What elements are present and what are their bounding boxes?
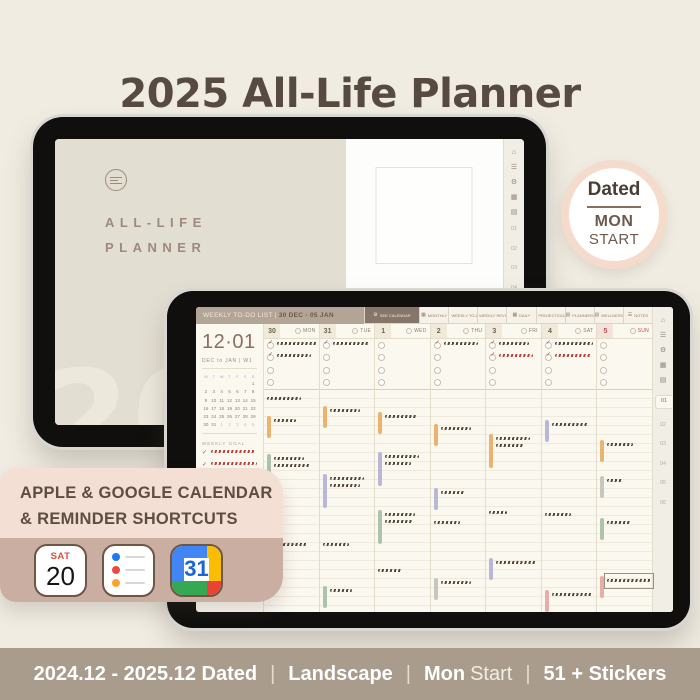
planner-tab-weekly-to-do[interactable]: ▦WEEKLY TO-DO [448, 307, 477, 323]
day-column-sun: 5SUN [597, 324, 652, 612]
day-header[interactable]: 4SAT [542, 324, 597, 339]
week-range-label: DEC to JAN | W1 [202, 358, 257, 369]
event-color-bar [434, 424, 438, 446]
todo-item[interactable] [375, 339, 430, 352]
mini-cal-day[interactable]: 27 [233, 414, 241, 420]
todo-checkbox[interactable]: ✓ [489, 342, 496, 349]
mini-cal-day[interactable] [226, 381, 234, 387]
event-handwriting [552, 590, 595, 600]
day-weekday-label: WED [414, 328, 427, 334]
planner-tab-label: PROJECT/GOAL [538, 313, 564, 318]
timeline-event[interactable] [489, 508, 539, 518]
todo-item[interactable]: ✓ [264, 352, 319, 365]
mini-cal-day[interactable]: 24 [210, 414, 218, 420]
todo-checkbox[interactable]: ✓ [545, 354, 552, 361]
check-mark-icon: ✓ [490, 352, 495, 358]
todo-checkbox[interactable]: ✓ [545, 342, 552, 349]
settings-icon[interactable]: ⚙ [511, 179, 517, 186]
apple-calendar-weekday: SAT [51, 551, 71, 562]
event-color-bar [378, 412, 382, 434]
mini-cal-day[interactable]: 7 [241, 389, 249, 395]
reminder-line [125, 582, 145, 585]
todo-item[interactable] [320, 364, 375, 377]
day-timeline[interactable] [320, 390, 375, 612]
event-color-bar [323, 586, 327, 608]
timeline-event[interactable] [434, 424, 484, 446]
event-handwriting [330, 474, 373, 491]
todo-item[interactable] [597, 364, 652, 377]
month-tab-04[interactable]: 04 [660, 462, 666, 468]
settings-icon[interactable]: ⚙ [660, 347, 666, 354]
planner-tab-planners[interactable]: ▤PLANNERS [565, 307, 594, 323]
timeline-event[interactable] [600, 440, 650, 462]
event-color-bar [489, 434, 493, 468]
badge-dated-label: Dated [569, 179, 659, 201]
day-weekday-label: SAT [583, 328, 593, 334]
event-handwriting [330, 406, 373, 416]
mini-calendar[interactable]: 1234567891011121314151617181920212223242… [202, 381, 257, 434]
handwritten-note [607, 479, 623, 482]
todo-item[interactable]: ✓ [542, 339, 597, 352]
home-icon[interactable]: ⌂ [512, 149, 516, 156]
todo-checkbox[interactable] [434, 354, 441, 361]
mini-cal-day[interactable]: 18 [218, 406, 226, 412]
todo-item[interactable] [375, 352, 430, 365]
handwritten-note [330, 477, 364, 480]
month-tab-01[interactable]: 01 [511, 227, 517, 233]
day-header[interactable]: 30MON [264, 324, 319, 339]
event-handwriting [441, 424, 484, 434]
reminder-color-dot [112, 566, 120, 574]
todo-item[interactable] [597, 339, 652, 352]
todo-checkbox[interactable] [600, 379, 607, 386]
handwritten-note [211, 450, 255, 453]
mini-cal-day[interactable]: 17 [210, 406, 218, 412]
timeline-event[interactable] [434, 578, 484, 600]
event-handwriting [378, 566, 428, 576]
mini-cal-day[interactable]: 5 [226, 389, 234, 395]
timeline-event[interactable] [489, 558, 539, 580]
todo-item[interactable] [320, 377, 375, 390]
day-weekday-label: TUE [360, 328, 371, 334]
month-tab-02[interactable]: 02 [511, 247, 517, 253]
calendar-icon[interactable]: ▦ [660, 362, 667, 369]
todo-checkbox[interactable] [434, 367, 441, 374]
day-weekday-label: FRI [529, 328, 538, 334]
planner-tab-label: WELLNESS [601, 313, 623, 318]
event-handwriting [385, 452, 428, 469]
event-handwriting [496, 434, 539, 451]
footer-separator: | [257, 663, 288, 686]
mini-cal-day[interactable]: 23 [202, 414, 210, 420]
calendar-icon: ▦ [421, 313, 426, 318]
day-column-fri: 3FRI✓✓ [486, 324, 542, 612]
day-timeline[interactable] [431, 390, 486, 612]
mini-cal-day[interactable]: 9 [202, 398, 210, 404]
gcal-green-band [172, 581, 207, 595]
reminder-row [112, 566, 145, 574]
month-tab-02[interactable]: 02 [660, 423, 666, 429]
todo-checkbox[interactable] [378, 354, 385, 361]
reminder-line [125, 556, 145, 559]
handwritten-note [441, 491, 465, 494]
todo-checkbox[interactable] [600, 367, 607, 374]
planner-tab-bar: ⚙SEE CALENDAR▦MONTHLY▦WEEKLY TO-DO▦WEEKL… [364, 307, 652, 324]
todo-item[interactable] [542, 377, 597, 390]
handwritten-note [323, 543, 349, 546]
event-color-bar [600, 576, 604, 598]
todo-checkbox[interactable] [378, 342, 385, 349]
todo-item[interactable] [431, 352, 486, 365]
list-icon[interactable]: ☰ [660, 332, 666, 339]
todo-item[interactable]: ✓ [486, 352, 541, 365]
weekly-header-title: WEEKLY TO-DO LIST | 30 DEC - 05 JAN [196, 307, 364, 324]
handwritten-note [385, 520, 413, 523]
todo-item[interactable] [264, 377, 319, 390]
todo-checkbox[interactable] [323, 354, 330, 361]
planner-tab-label: SEE CALENDAR [380, 313, 411, 318]
timeline-event[interactable] [545, 420, 595, 442]
timeline-event[interactable] [267, 394, 317, 404]
mini-cal-day[interactable]: 26 [226, 414, 234, 420]
event-color-bar [378, 452, 382, 486]
day-status-ring[interactable] [295, 328, 301, 334]
calendar-alt-icon[interactable]: ▤ [511, 209, 518, 216]
mini-cal-day[interactable]: 10 [210, 398, 218, 404]
handwritten-note [607, 443, 633, 446]
timeline-event[interactable] [267, 416, 317, 438]
handwritten-note [496, 444, 524, 447]
day-status-ring[interactable] [521, 328, 527, 334]
event-handwriting [267, 394, 317, 404]
planner-tab-see-calendar[interactable]: ⚙SEE CALENDAR [364, 307, 419, 323]
weekly-goal-item[interactable]: ✓ [202, 450, 257, 457]
month-transition-label: 12·01 [202, 331, 257, 354]
day-status-ring[interactable] [352, 328, 358, 334]
event-handwriting [330, 586, 373, 596]
handwritten-note [330, 409, 360, 412]
mini-cal-day[interactable]: 29 [249, 414, 257, 420]
event-handwriting [552, 420, 595, 430]
event-handwriting [441, 488, 484, 498]
todo-handwriting [333, 342, 369, 345]
badge-mon-label: MON [569, 213, 659, 231]
mini-calendar-weekday-row: MTWTFSS [202, 374, 257, 379]
day-header[interactable]: 3FRI [486, 324, 541, 339]
mini-cal-day[interactable]: 3 [233, 422, 241, 428]
handwritten-note [385, 415, 417, 418]
event-handwriting [441, 578, 484, 588]
mini-cal-day[interactable]: 14 [241, 398, 249, 404]
cover-title-line1: ALL-LIFE [105, 215, 207, 230]
planner-tab-label: NOTES [634, 313, 648, 318]
mini-cal-day[interactable]: 2 [226, 422, 234, 428]
footer-stickers-count: 51 + Stickers [544, 663, 667, 686]
timeline-event[interactable] [600, 576, 650, 598]
mini-cal-day[interactable] [241, 381, 249, 387]
todo-item[interactable] [486, 377, 541, 390]
event-handwriting [274, 454, 317, 471]
day-number: 30 [264, 324, 280, 338]
mini-cal-day[interactable] [218, 381, 226, 387]
month-tab-05[interactable]: 05 [660, 481, 666, 487]
handwritten-note [385, 513, 415, 516]
day-timeline[interactable] [486, 390, 541, 612]
todo-item[interactable] [597, 352, 652, 365]
dated-mon-start-badge: Dated MON START [561, 160, 667, 269]
todo-checkbox[interactable] [378, 379, 385, 386]
cover-stamp-icon [105, 169, 127, 191]
timeline-event[interactable] [323, 540, 373, 550]
todo-checkbox[interactable]: ✓ [323, 342, 330, 349]
todo-handwriting [277, 354, 311, 357]
photo-placeholder[interactable] [376, 167, 473, 264]
handwritten-note [378, 569, 402, 572]
mini-cal-day[interactable]: 20 [233, 406, 241, 412]
todo-item[interactable]: ✓ [542, 352, 597, 365]
todo-checkbox[interactable]: ✓ [434, 342, 441, 349]
mini-cal-day[interactable] [202, 381, 210, 387]
check-mark-icon: ✓ [546, 340, 551, 346]
todo-item[interactable] [597, 377, 652, 390]
weekly-header-range: 30 DEC - 05 JAN [279, 312, 334, 319]
todo-handwriting [555, 342, 593, 345]
planner-tab-project-goal[interactable]: ☰PROJECT/GOAL [536, 307, 565, 323]
month-tab-06[interactable]: 06 [660, 501, 666, 507]
event-color-bar [600, 518, 604, 540]
footer-week-start-bold: Mon [424, 663, 465, 686]
todo-checkbox[interactable] [545, 379, 552, 386]
mini-cal-day[interactable]: 3 [210, 389, 218, 395]
mini-cal-day[interactable]: 28 [241, 414, 249, 420]
timeline-event[interactable] [323, 406, 373, 428]
handwritten-note [441, 581, 471, 584]
day-weekday-label: THU [471, 328, 482, 334]
day-header[interactable]: 1WED [375, 324, 430, 339]
day-number: 31 [320, 324, 336, 338]
calendar-icon: ▦ [512, 313, 517, 318]
todo-handwriting [277, 342, 317, 345]
mini-cal-day[interactable]: 12 [226, 398, 234, 404]
apple-reminders-icon [102, 544, 155, 597]
todo-list: ✓✓ [486, 339, 541, 390]
timeline-event[interactable] [323, 474, 373, 508]
planner-tab-wellness[interactable]: ▤WELLNESS [594, 307, 623, 323]
day-timeline[interactable] [597, 390, 652, 612]
calendar-alt-icon: ▤ [566, 313, 571, 318]
event-handwriting [496, 558, 539, 568]
planner-side-tab-strip: ⌂☰⚙▦▤010203040506 [652, 307, 673, 612]
todo-checkbox[interactable] [434, 379, 441, 386]
todo-item[interactable] [431, 377, 486, 390]
todo-item[interactable] [486, 364, 541, 377]
event-color-bar [545, 590, 549, 612]
timeline-event[interactable] [600, 518, 650, 540]
day-column-tue: 31TUE✓ [320, 324, 376, 612]
day-column-wed: 1WED [375, 324, 431, 612]
event-color-bar [378, 510, 382, 544]
day-status-ring[interactable] [463, 328, 469, 334]
week-day-columns: 30MON✓✓31TUE✓1WED2THU✓3FRI✓✓4SAT✓✓5SUN [264, 324, 652, 612]
calendar-alt-icon[interactable]: ▤ [660, 377, 667, 384]
reminder-color-dot [112, 553, 120, 561]
calendar-icon[interactable]: ▦ [511, 194, 518, 201]
mini-cal-day[interactable]: 11 [218, 398, 226, 404]
todo-checkbox[interactable]: ✓ [489, 354, 496, 361]
mini-cal-day[interactable]: 15 [249, 398, 257, 404]
mini-cal-day[interactable]: 30 [202, 422, 210, 428]
planner-tab-notes[interactable]: ☰NOTES [623, 307, 652, 323]
timeline-event[interactable] [378, 566, 428, 576]
todo-item[interactable]: ✓ [486, 339, 541, 352]
mini-cal-day[interactable] [233, 381, 241, 387]
mini-cal-day[interactable]: 25 [218, 414, 226, 420]
mini-cal-day[interactable]: 8 [249, 389, 257, 395]
timeline-event[interactable] [545, 590, 595, 612]
todo-checkbox[interactable] [545, 367, 552, 374]
footer-dated-range: 2024.12 - 2025.12 Dated [34, 663, 258, 686]
todo-checkbox[interactable]: ✓ [267, 342, 274, 349]
shortcuts-callout-card: APPLE & GOOGLE CALENDAR & REMINDER SHORT… [0, 468, 283, 602]
check-mark-icon: ✓ [435, 340, 440, 346]
todo-checkbox[interactable] [489, 379, 496, 386]
handwritten-note [552, 423, 588, 426]
timeline-event[interactable] [378, 452, 428, 486]
planner-tab-monthly[interactable]: ▦MONTHLY [419, 307, 448, 323]
mini-cal-day[interactable]: 13 [233, 398, 241, 404]
page-title: 2025 All-Life Planner [0, 71, 700, 117]
calendar-alt-icon: ▤ [595, 313, 600, 318]
month-tab-03[interactable]: 03 [511, 266, 517, 272]
day-timeline[interactable] [375, 390, 430, 612]
shortcuts-text-line1: APPLE & GOOGLE CALENDAR [20, 481, 283, 507]
check-mark-icon: ✓ [268, 352, 273, 358]
todo-list [597, 339, 652, 390]
timeline-event[interactable] [434, 488, 484, 510]
timeline-event[interactable] [378, 412, 428, 434]
day-header[interactable]: 5SUN [597, 324, 652, 339]
todo-checkbox[interactable]: ✓ [267, 354, 274, 361]
day-status-ring[interactable] [630, 328, 636, 334]
todo-handwriting [555, 354, 591, 357]
check-mark-icon: ✓ [546, 352, 551, 358]
todo-checkbox[interactable] [267, 379, 274, 386]
todo-item[interactable] [264, 364, 319, 377]
day-status-ring[interactable] [406, 328, 412, 334]
footer-week-start-light: Start [470, 663, 512, 686]
todo-list: ✓✓ [264, 339, 319, 390]
todo-item[interactable] [542, 364, 597, 377]
checked-mark-icon[interactable]: ✓ [202, 450, 208, 456]
todo-item[interactable]: ✓ [320, 339, 375, 352]
day-header[interactable]: 31TUE [320, 324, 375, 339]
timeline-event[interactable] [434, 518, 484, 528]
event-color-bar [600, 476, 604, 498]
day-number: 5 [597, 324, 613, 338]
mini-cal-day[interactable]: 1 [218, 422, 226, 428]
todo-checkbox[interactable] [489, 367, 496, 374]
list-icon[interactable]: ☰ [511, 164, 517, 171]
day-weekday-label: MON [303, 328, 316, 334]
mini-cal-weekday: F [233, 374, 241, 379]
timeline-event[interactable] [600, 476, 650, 498]
todo-checkbox[interactable] [378, 367, 385, 374]
handwritten-note [441, 427, 471, 430]
mini-cal-day[interactable]: 2 [202, 389, 210, 395]
event-color-bar [323, 474, 327, 508]
day-header[interactable]: 2THU [431, 324, 486, 339]
todo-item[interactable]: ✓ [431, 339, 486, 352]
todo-item[interactable]: ✓ [264, 339, 319, 352]
footer-separator: | [512, 663, 543, 686]
todo-checkbox[interactable] [267, 367, 274, 374]
mini-cal-day[interactable]: 1 [249, 381, 257, 387]
todo-item[interactable] [375, 377, 430, 390]
timeline-event[interactable] [323, 586, 373, 608]
home-icon[interactable]: ⌂ [661, 317, 665, 324]
mini-cal-day[interactable]: 5 [249, 422, 257, 428]
mini-cal-day[interactable] [210, 381, 218, 387]
todo-list: ✓ [431, 339, 486, 390]
event-handwriting [385, 412, 428, 422]
day-column-sat: 4SAT✓✓ [542, 324, 598, 612]
todo-checkbox[interactable] [323, 379, 330, 386]
mini-cal-day[interactable]: 6 [233, 389, 241, 395]
apple-calendar-icon: SAT 20 [34, 544, 87, 597]
todo-checkbox[interactable] [323, 367, 330, 374]
reminder-row [112, 579, 145, 587]
todo-list: ✓ [320, 339, 375, 390]
mini-cal-day[interactable]: 22 [249, 406, 257, 412]
badge-start-label: START [569, 231, 659, 248]
handwritten-note [274, 464, 310, 467]
mini-cal-weekday: S [249, 374, 257, 379]
month-tab-03[interactable]: 03 [660, 442, 666, 448]
timeline-event[interactable] [378, 510, 428, 544]
badge-divider [587, 206, 641, 208]
todo-item[interactable] [431, 364, 486, 377]
todo-item[interactable] [320, 352, 375, 365]
gcal-blue-band [172, 546, 184, 581]
timeline-event[interactable] [489, 434, 539, 468]
event-color-bar [267, 416, 271, 438]
day-status-ring[interactable] [575, 328, 581, 334]
handwritten-note [385, 455, 419, 458]
planner-tab-label: MONTHLY [428, 313, 447, 318]
timeline-event[interactable] [545, 510, 595, 520]
planner-header: WEEKLY TO-DO LIST | 30 DEC - 05 JAN ⚙SEE… [196, 307, 652, 324]
todo-checkbox[interactable] [600, 342, 607, 349]
mini-cal-day[interactable]: 16 [202, 406, 210, 412]
mini-cal-day[interactable]: 4 [241, 422, 249, 428]
mini-cal-day[interactable]: 31 [210, 422, 218, 428]
day-number: 2 [431, 324, 447, 338]
mini-cal-day[interactable]: 21 [241, 406, 249, 412]
planner-tab-daily[interactable]: ▦DAILY [506, 307, 535, 323]
day-timeline[interactable] [542, 390, 597, 612]
footer-separator: | [393, 663, 424, 686]
event-handwriting [323, 540, 373, 550]
mini-cal-day[interactable]: 4 [218, 389, 226, 395]
todo-checkbox[interactable] [600, 354, 607, 361]
mini-cal-day[interactable]: 19 [226, 406, 234, 412]
shortcuts-card-text: APPLE & GOOGLE CALENDAR & REMINDER SHORT… [0, 468, 283, 538]
planner-tab-label: WEEKLY TO-DO [451, 313, 477, 318]
planner-tab-weekly-review[interactable]: ▦WEEKLY REVIEW [477, 307, 506, 323]
month-tab-01[interactable]: 01 [655, 395, 672, 409]
settings-icon: ⚙ [373, 313, 377, 318]
todo-item[interactable] [375, 364, 430, 377]
